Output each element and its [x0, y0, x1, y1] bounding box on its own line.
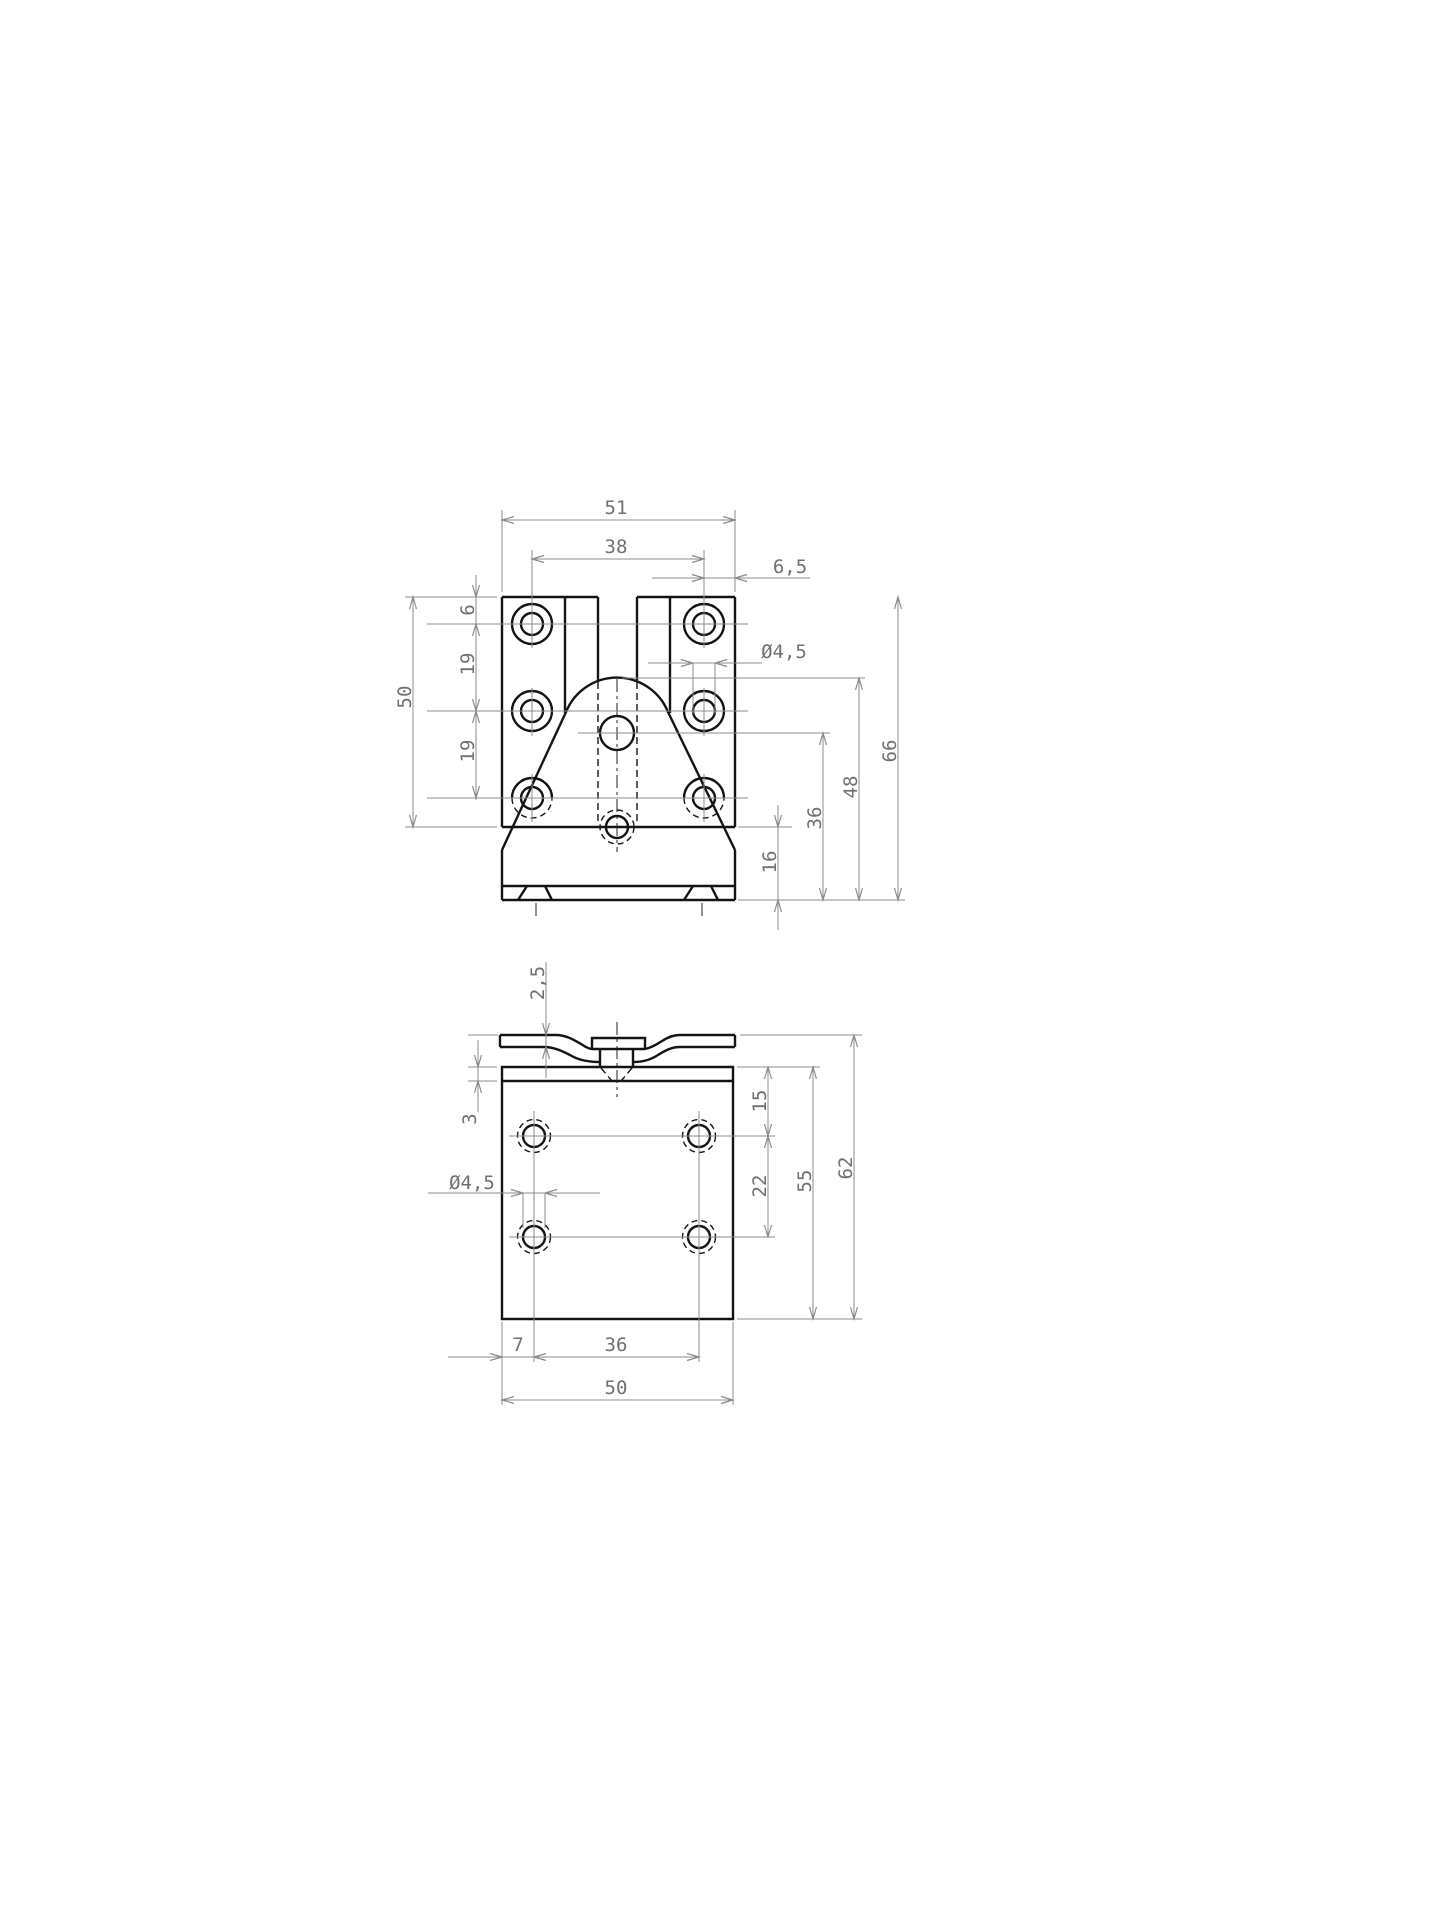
- countersink-feet: [518, 886, 718, 900]
- dim-side-left-offset: 7: [512, 1334, 523, 1356]
- base: [502, 850, 735, 900]
- dim-front-row-gap-2: 19: [457, 740, 479, 763]
- dim-side-overall-width: 50: [605, 1377, 628, 1399]
- side-view-dimensions: 2,5 3 Ø4,5 15 22 55 62 7 36 50: [428, 962, 862, 1405]
- front-view: 51 38 6,5 Ø4,5 6 19 19 50 66 48 36 16: [394, 497, 905, 930]
- dim-side-flange-thickness: 2,5: [527, 966, 549, 1000]
- technical-drawing: 51 38 6,5 Ø4,5 6 19 19 50 66 48 36 16: [0, 0, 1440, 1920]
- front-view-holes: [427, 600, 830, 852]
- dim-side-overall-height: 62: [835, 1157, 857, 1180]
- side-view-outline: [500, 1022, 735, 1319]
- dim-front-arch-height: 48: [840, 776, 862, 799]
- dim-front-hole-rows-height: 50: [394, 686, 416, 709]
- boss-arch: [502, 678, 735, 850]
- drawing-sheet: 51 38 6,5 Ø4,5 6 19 19 50 66 48 36 16: [0, 0, 1440, 1920]
- dim-side-top-to-row1: 15: [749, 1090, 771, 1113]
- dim-front-hole-cols-width: 38: [605, 536, 628, 558]
- dim-side-row-gap: 22: [749, 1175, 771, 1198]
- dim-front-right-offset: 6,5: [773, 556, 807, 578]
- dim-front-center-hole-height: 36: [804, 807, 826, 830]
- dim-front-base-height: 16: [759, 851, 781, 874]
- front-view-outline: [502, 597, 735, 917]
- dim-front-overall-height: 66: [879, 740, 901, 763]
- dim-front-overall-width: 51: [605, 497, 628, 519]
- dim-front-row-gap-1: 19: [457, 653, 479, 676]
- dim-side-hole-diameter: Ø4,5: [449, 1172, 495, 1194]
- dim-front-hole-diameter: Ø4,5: [761, 641, 807, 663]
- side-view-holes: [509, 1111, 775, 1362]
- front-view-dimensions: 51 38 6,5 Ø4,5 6 19 19 50 66 48 36 16: [394, 497, 905, 930]
- side-view: 2,5 3 Ø4,5 15 22 55 62 7 36 50: [428, 962, 862, 1405]
- dim-side-plate-height: 55: [794, 1170, 816, 1193]
- dim-side-top-step: 3: [459, 1113, 481, 1124]
- dim-front-top-offset: 6: [457, 604, 479, 615]
- dim-side-hole-cols-width: 36: [605, 1334, 628, 1356]
